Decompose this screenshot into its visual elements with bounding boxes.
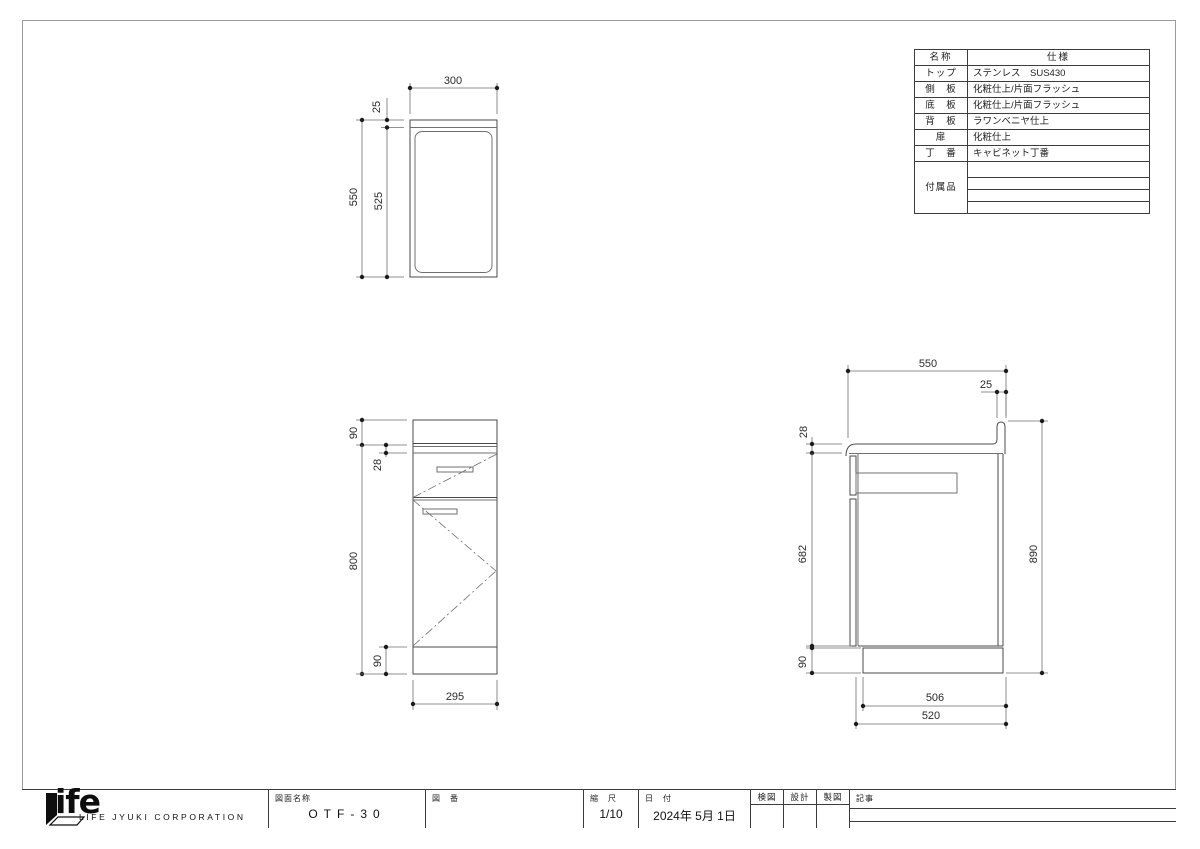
spec-value: 化粧仕上/片面フラッシュ (968, 82, 1150, 98)
dim-side-body-depth: 520 (922, 710, 940, 722)
spec-accessory-value (968, 162, 1150, 178)
table-row: 付属品 (915, 162, 1150, 178)
dim-side-kick-depth: 506 (926, 692, 944, 704)
spec-name: トップ (915, 66, 968, 82)
dim-front-kick: 90 (372, 655, 384, 667)
design-label: 設計 (784, 790, 816, 805)
title-block: ife LIFE JYUKI CORPORATION 図面名称 OTF-30 図… (22, 789, 1176, 828)
spec-value: ラワンベニヤ仕上 (968, 114, 1150, 130)
table-row: 側 板 化粧仕上/片面フラッシュ (915, 82, 1150, 98)
design-cell: 設計 (783, 790, 816, 828)
upper-handle (437, 467, 473, 472)
scale-label: 縮 尺 (590, 793, 617, 804)
spec-value: キャビネット丁番 (968, 146, 1150, 162)
scale-value: 1/10 (584, 807, 638, 821)
spec-name: 扉 (915, 130, 968, 146)
dim-plan-width: 300 (444, 75, 462, 87)
dim-side-backsplash: 25 (980, 379, 992, 391)
spec-name: 丁 番 (915, 146, 968, 162)
front-view: 90 28 800 90 295 (348, 418, 499, 710)
dim-front-edge: 28 (372, 459, 384, 471)
spec-value: 化粧仕上 (968, 130, 1150, 146)
date-cell: 日 付 2024年 5月 1日 (638, 790, 750, 828)
page: { "spec_table": { "header": {"name": "名称… (0, 0, 1200, 849)
dim-plan-inner: 525 (373, 192, 385, 210)
drawing-name: OTF-30 (269, 807, 425, 821)
check-cell: 検図 (750, 790, 783, 828)
kickboard (863, 648, 1003, 673)
dim-side-kick: 90 (797, 656, 809, 668)
logo-cell: ife LIFE JYUKI CORPORATION (22, 790, 268, 828)
spec-header-row: 名称 仕様 (915, 50, 1150, 66)
dim-front-body: 800 (348, 552, 360, 570)
table-row: 背 板 ラワンベニヤ仕上 (915, 114, 1150, 130)
spec-accessories-label: 付属品 (915, 162, 968, 214)
drawing-name-cell: 図面名称 OTF-30 (268, 790, 425, 828)
drawing-number-cell: 図 番 (425, 790, 583, 828)
dim-plan-depth: 550 (348, 188, 360, 206)
scale-cell: 縮 尺 1/10 (583, 790, 638, 828)
spec-header-name: 名称 (915, 50, 968, 66)
remarks-label: 記事 (856, 793, 874, 804)
table-row: 扉 化粧仕上 (915, 130, 1150, 146)
drawing-name-label: 図面名称 (275, 793, 311, 804)
dim-front-top: 90 (348, 427, 360, 439)
dim-side-counter: 28 (798, 426, 810, 438)
spec-accessory-value (968, 202, 1150, 214)
draft-cell: 製図 (816, 790, 849, 828)
drawer-box (856, 473, 957, 493)
remarks-divider (850, 808, 1176, 809)
side-view: 550 25 28 682 90 890 506 (797, 358, 1048, 729)
spec-header-spec: 仕様 (968, 50, 1150, 66)
drawing-number-label: 図 番 (432, 793, 459, 804)
spec-table: 名称 仕様 トップ ステンレス SUS430 側 板 化粧仕上/片面フラッシュ … (914, 49, 1150, 214)
dim-plan-backsplash: 25 (371, 101, 383, 113)
spec-name: 底 板 (915, 98, 968, 114)
spec-accessory-value (968, 178, 1150, 190)
remarks-divider (850, 821, 1176, 822)
date-value: 2024年 5月 1日 (639, 807, 750, 824)
table-row: 底 板 化粧仕上/片面フラッシュ (915, 98, 1150, 114)
spec-accessory-value (968, 190, 1150, 202)
table-row: トップ ステンレス SUS430 (915, 66, 1150, 82)
dim-side-body: 682 (797, 545, 809, 563)
plan-view: 300 550 525 25 (348, 75, 499, 279)
spec-value: 化粧仕上/片面フラッシュ (968, 98, 1150, 114)
dim-side-depth: 550 (919, 358, 937, 370)
dim-side-height: 890 (1028, 545, 1040, 563)
spec-name: 側 板 (915, 82, 968, 98)
check-label: 検図 (751, 790, 783, 805)
company-name: LIFE JYUKI CORPORATION (79, 812, 246, 822)
date-label: 日 付 (645, 793, 672, 804)
dim-front-width: 295 (446, 691, 464, 703)
table-row: 丁 番 キャビネット丁番 (915, 146, 1150, 162)
draft-label: 製図 (817, 790, 849, 805)
spec-name: 背 板 (915, 114, 968, 130)
spec-value: ステンレス SUS430 (968, 66, 1150, 82)
remarks-cell: 記事 (849, 790, 1176, 828)
